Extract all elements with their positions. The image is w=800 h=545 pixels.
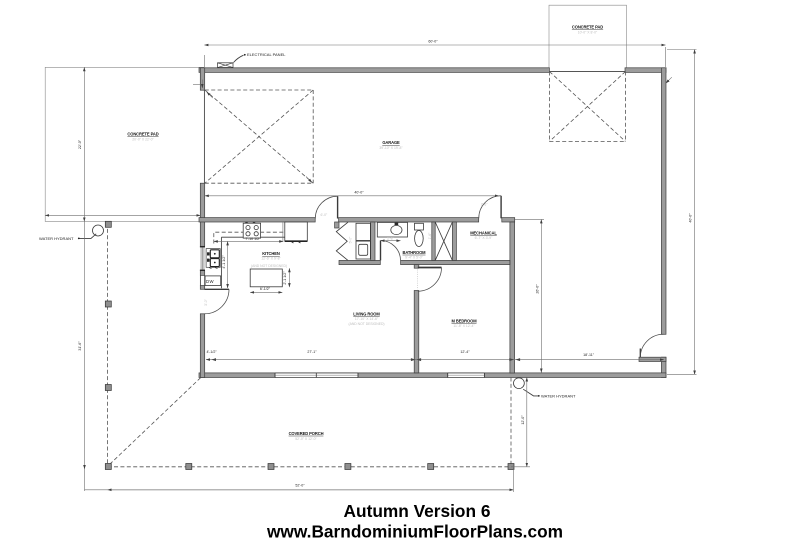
svg-text:18'-11": 18'-11" <box>583 353 595 357</box>
svg-text:Autumn Version 6: Autumn Version 6 <box>344 501 491 521</box>
svg-text:www.BarndominiumFloorPlans.com: www.BarndominiumFloorPlans.com <box>266 522 563 542</box>
svg-text:BATHROOM: BATHROOM <box>402 250 426 255</box>
svg-text:GARAGE: GARAGE <box>382 140 400 145</box>
svg-text:39'-10" X 19'-8": 39'-10" X 19'-8" <box>379 146 403 150</box>
svg-text:9'-4" X 5'-0": 9'-4" X 5'-0" <box>405 255 423 259</box>
svg-text:COVERED PORCH: COVERED PORCH <box>289 431 324 436</box>
svg-text:27'-1": 27'-1" <box>307 350 317 354</box>
svg-text:DW: DW <box>206 279 215 284</box>
svg-text:4'-1/2": 4'-1/2" <box>207 350 218 354</box>
svg-text:LIVING ROOM: LIVING ROOM <box>353 312 380 317</box>
svg-text:1'-6": 1'-6" <box>428 232 432 240</box>
svg-text:40'-0": 40'-0" <box>354 190 364 194</box>
svg-text:11'-8" X 12'-4": 11'-8" X 12'-4" <box>453 324 475 328</box>
svg-text:WATER HYDRANT: WATER HYDRANT <box>39 236 74 241</box>
svg-text:3'-0": 3'-0" <box>204 298 208 306</box>
svg-text:WATER HYDRANT: WATER HYDRANT <box>541 393 576 398</box>
svg-text:CONCRETE PAD: CONCRETE PAD <box>572 25 603 30</box>
svg-text:KITCHEN: KITCHEN <box>262 251 280 256</box>
svg-text:20'-0" X 22'-0": 20'-0" X 22'-0" <box>132 138 154 142</box>
svg-text:6'-1/2": 6'-1/2" <box>260 287 271 291</box>
svg-text:6'-0": 6'-0" <box>321 213 329 217</box>
svg-text:52'-0": 52'-0" <box>295 484 305 488</box>
svg-text:5'-0": 5'-0" <box>349 236 353 244</box>
svg-text:CONCRETE PAD: CONCRETE PAD <box>127 132 158 137</box>
svg-text:12'-6" X 9'-8": 12'-6" X 9'-8" <box>261 257 281 261</box>
svg-text:(AND NOT DESIGNED): (AND NOT DESIGNED) <box>348 322 384 326</box>
svg-text:26'-0": 26'-0" <box>535 284 539 294</box>
svg-text:2'-6": 2'-6" <box>481 202 489 206</box>
svg-text:12'-4": 12'-4" <box>460 350 470 354</box>
svg-text:MECHANICAL: MECHANICAL <box>470 231 497 236</box>
svg-text:7'-10 1/2": 7'-10 1/2" <box>245 237 261 241</box>
svg-text:2'-8": 2'-8" <box>387 237 395 241</box>
svg-text:40'-0": 40'-0" <box>689 213 693 223</box>
svg-text:4'-1 1/2": 4'-1 1/2" <box>222 255 226 269</box>
svg-text:6'-7" X 3'-9": 6'-7" X 3'-9" <box>475 236 493 240</box>
svg-text:10'-0" X 8'-0": 10'-0" X 8'-0" <box>578 31 598 35</box>
svg-text:60'-0": 60'-0" <box>428 40 438 44</box>
svg-text:17'-10" X 14'-6": 17'-10" X 14'-6" <box>355 317 379 321</box>
svg-text:(AND NOT DESIGNED): (AND NOT DESIGNED) <box>251 264 287 268</box>
svg-text:22'-0": 22'-0" <box>78 139 82 149</box>
svg-text:2'-1 1/2": 2'-1 1/2" <box>283 271 287 285</box>
svg-text:M BEDROOM: M BEDROOM <box>451 319 477 324</box>
svg-text:31'-6": 31'-6" <box>78 341 82 351</box>
svg-text:52'-0" X 12'-0": 52'-0" X 12'-0" <box>295 437 317 441</box>
svg-text:ELECTRICAL PANEL: ELECTRICAL PANEL <box>247 52 286 57</box>
svg-text:12'-0": 12'-0" <box>521 415 525 425</box>
